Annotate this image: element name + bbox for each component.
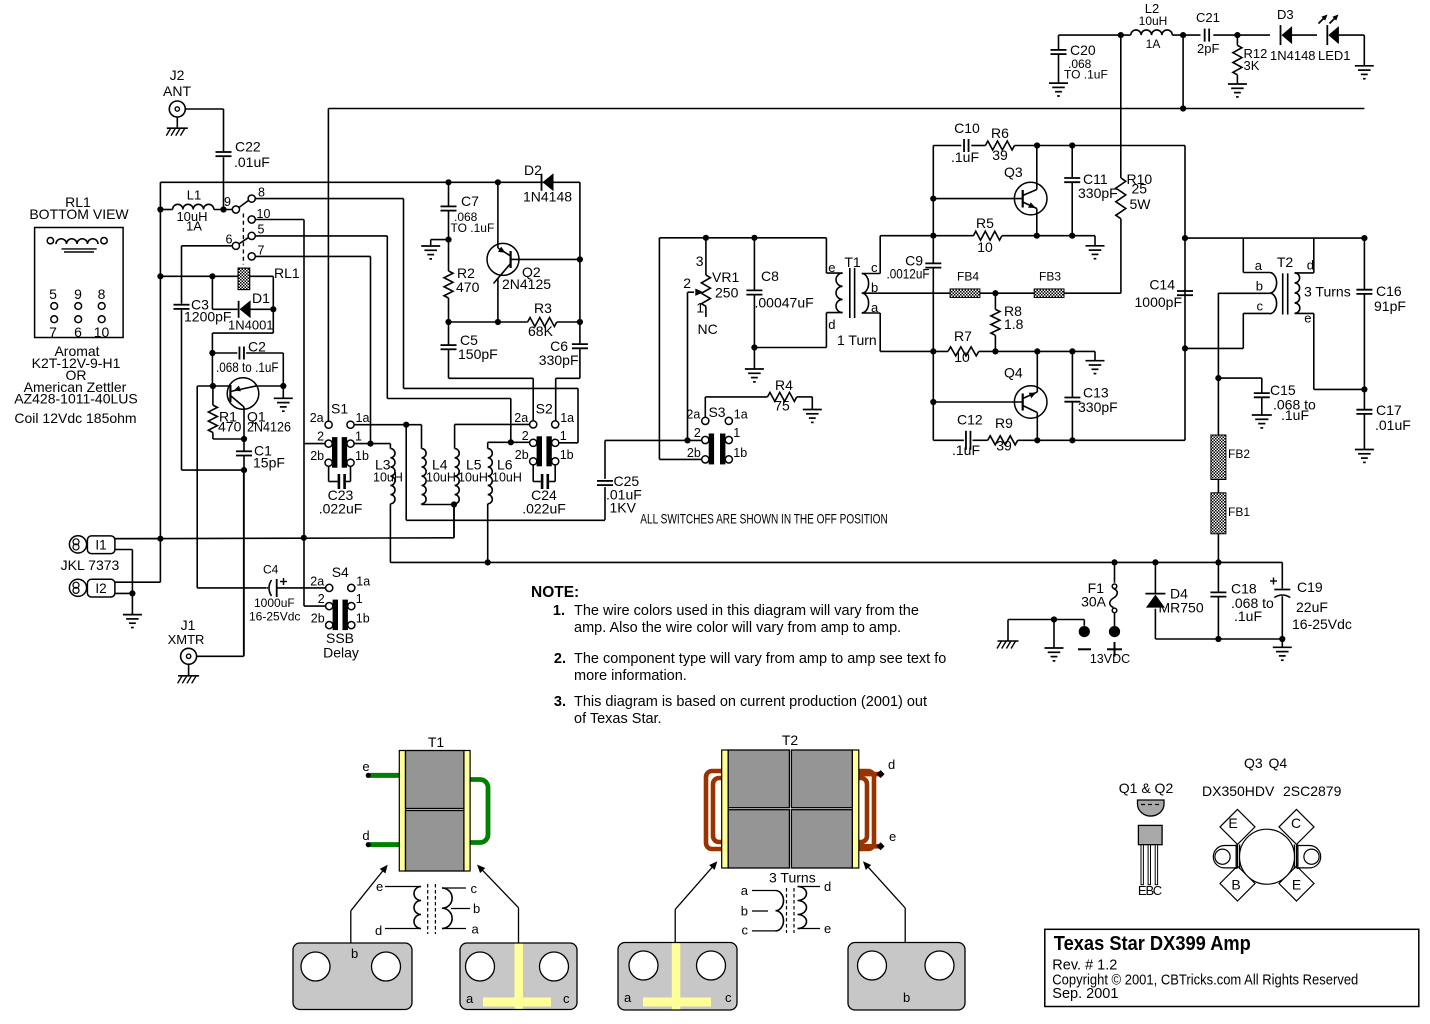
svg-text:75: 75 (774, 398, 790, 414)
svg-text:MR750: MR750 (1159, 600, 1204, 616)
svg-text:ALL SWITCHES ARE SHOWN IN THE: ALL SWITCHES ARE SHOWN IN THE OFF POSITI… (640, 511, 888, 527)
svg-text:2a: 2a (686, 407, 700, 421)
svg-text:C: C (1291, 815, 1301, 831)
svg-text:5: 5 (258, 223, 265, 237)
svg-text:Q1 & Q2: Q1 & Q2 (1119, 780, 1174, 796)
svg-text:ANT: ANT (163, 83, 191, 99)
svg-text:1000uF: 1000uF (254, 596, 295, 610)
svg-text:D3: D3 (1277, 7, 1294, 22)
svg-text:e: e (362, 759, 369, 774)
svg-text:a: a (466, 991, 474, 1006)
svg-text:1A: 1A (1146, 37, 1161, 51)
svg-text:Sep. 2001: Sep. 2001 (1052, 986, 1118, 1002)
svg-text:b: b (903, 990, 910, 1005)
svg-text:b: b (473, 901, 480, 916)
svg-text:FB4: FB4 (957, 270, 979, 284)
svg-text:10: 10 (94, 324, 110, 340)
svg-text:C: C (1153, 883, 1162, 898)
svg-text:E: E (1228, 815, 1237, 831)
svg-text:2pF: 2pF (1197, 41, 1219, 56)
svg-text:.0012uF: .0012uF (887, 266, 930, 282)
svg-text:Rev. # 1.2: Rev. # 1.2 (1052, 958, 1117, 974)
svg-text:10uH: 10uH (458, 471, 488, 485)
svg-text:FB2: FB2 (1228, 447, 1250, 461)
svg-text:2SC2879: 2SC2879 (1283, 783, 1342, 799)
svg-text:2.: 2. (554, 651, 566, 667)
svg-text:68K: 68K (528, 323, 554, 339)
svg-text:Q3: Q3 (1004, 164, 1023, 180)
svg-text:d: d (375, 923, 382, 938)
svg-text:I2: I2 (95, 581, 106, 596)
svg-text:C22: C22 (235, 139, 261, 155)
svg-text:JKL 7373: JKL 7373 (61, 557, 120, 573)
svg-text:2a: 2a (310, 411, 324, 425)
svg-text:c: c (1257, 299, 1264, 314)
svg-text:.01uF: .01uF (234, 154, 270, 170)
svg-text:FB1: FB1 (1228, 505, 1250, 519)
svg-text:1: 1 (355, 430, 362, 444)
svg-text:16-25Vdc: 16-25Vdc (249, 610, 300, 624)
svg-text:C14: C14 (1149, 277, 1175, 293)
svg-text:1b: 1b (733, 446, 747, 460)
svg-text:R5: R5 (976, 215, 994, 231)
svg-text:1a: 1a (560, 411, 574, 425)
svg-text:1a: 1a (356, 574, 370, 588)
svg-text:3: 3 (696, 253, 704, 269)
svg-text:I1: I1 (95, 538, 106, 553)
svg-text:DX350HDV: DX350HDV (1202, 783, 1275, 799)
svg-text:L1: L1 (187, 188, 201, 203)
svg-text:250: 250 (715, 285, 739, 301)
svg-text:470: 470 (218, 419, 242, 435)
svg-text:330pF: 330pF (1078, 185, 1118, 201)
svg-text:C20: C20 (1070, 42, 1096, 58)
svg-text:2: 2 (694, 426, 701, 440)
svg-text:b: b (871, 280, 878, 295)
svg-text:39: 39 (996, 438, 1012, 454)
svg-text:S1: S1 (331, 401, 348, 417)
svg-text:470: 470 (456, 279, 480, 295)
svg-text:C12: C12 (957, 412, 983, 428)
svg-text:7: 7 (258, 244, 265, 258)
svg-text:d: d (362, 828, 369, 843)
svg-text:D1: D1 (252, 290, 270, 306)
svg-text:of Texas Star.: of Texas Star. (574, 711, 662, 727)
svg-text:e: e (824, 921, 831, 936)
svg-text:The component type will vary f: The component type will vary from amp to… (574, 651, 946, 667)
svg-text:6: 6 (226, 233, 233, 247)
svg-text:a: a (624, 990, 632, 1005)
svg-text:T1: T1 (428, 734, 445, 750)
svg-text:This diagram is based on curre: This diagram is based on current product… (574, 694, 927, 710)
svg-text:10uH: 10uH (492, 471, 522, 485)
svg-text:13VDC: 13VDC (1090, 652, 1130, 666)
svg-text:7: 7 (49, 324, 57, 340)
svg-text:1a: 1a (356, 411, 370, 425)
svg-text:2: 2 (317, 430, 324, 444)
svg-text:8: 8 (98, 286, 106, 302)
svg-text:C7: C7 (461, 193, 479, 209)
svg-text:5W: 5W (1130, 196, 1152, 212)
svg-text:1000pF: 1000pF (1135, 294, 1182, 310)
svg-text:c: c (725, 990, 732, 1005)
svg-text:3 Turns: 3 Turns (1304, 283, 1351, 299)
svg-text:.068 to .1uF: .068 to .1uF (216, 359, 279, 375)
svg-text:S4: S4 (332, 564, 349, 580)
svg-text:.1uF: .1uF (952, 442, 980, 458)
svg-text:150pF: 150pF (458, 346, 498, 362)
svg-text:R4: R4 (775, 377, 793, 393)
svg-text:Texas Star DX399 Amp: Texas Star DX399 Amp (1054, 932, 1251, 955)
svg-text:91pF: 91pF (1374, 298, 1406, 314)
svg-text:.022uF: .022uF (319, 501, 363, 517)
svg-text:3.: 3. (554, 694, 566, 710)
svg-text:2: 2 (318, 592, 325, 606)
svg-text:1N4148: 1N4148 (523, 189, 572, 205)
svg-text:amp. Also the wire color will: amp. Also the wire color will vary from … (574, 620, 901, 636)
svg-text:C17: C17 (1376, 402, 1402, 418)
svg-text:more information.: more information. (574, 668, 687, 684)
svg-text:10: 10 (977, 239, 993, 255)
svg-text:FB3: FB3 (1039, 270, 1061, 284)
svg-text:AZ428-1011-40LUS: AZ428-1011-40LUS (14, 391, 137, 407)
svg-text:C21: C21 (1196, 10, 1220, 25)
svg-text:Q4: Q4 (1004, 365, 1023, 381)
svg-text:.01uF: .01uF (1375, 417, 1411, 433)
svg-text:D2: D2 (524, 162, 542, 178)
svg-text:C4: C4 (263, 563, 279, 577)
svg-text:330pF: 330pF (1078, 399, 1118, 415)
svg-text:c: c (871, 260, 878, 275)
svg-text:TO .1uF: TO .1uF (1064, 68, 1108, 82)
svg-text:1N4148: 1N4148 (1270, 48, 1316, 63)
svg-text:.1uF: .1uF (951, 149, 979, 165)
svg-text:TO .1uF: TO .1uF (451, 221, 495, 235)
svg-text:T2: T2 (1277, 254, 1294, 270)
svg-text:2: 2 (683, 275, 691, 291)
svg-text:1A: 1A (186, 219, 202, 234)
svg-text:T2: T2 (782, 732, 799, 748)
svg-text:b: b (1256, 279, 1263, 294)
svg-text:VR1: VR1 (712, 269, 739, 285)
svg-text:16-25Vdc: 16-25Vdc (1292, 616, 1352, 632)
svg-text:c: c (471, 881, 478, 896)
svg-text:9: 9 (224, 195, 231, 209)
svg-text:c: c (563, 991, 570, 1006)
svg-text:RL1: RL1 (274, 265, 300, 281)
svg-text:1.8: 1.8 (1004, 316, 1024, 332)
svg-text:6: 6 (74, 324, 82, 340)
svg-text:330pF: 330pF (539, 352, 579, 368)
svg-text:b: b (741, 904, 748, 919)
svg-text:3K: 3K (1244, 58, 1260, 73)
svg-text:10uH: 10uH (373, 471, 403, 485)
svg-text:2b: 2b (311, 612, 325, 626)
svg-text:30A: 30A (1081, 594, 1107, 610)
svg-text:Coil 12Vdc 185ohm: Coil 12Vdc 185ohm (14, 410, 136, 426)
svg-text:NOTE:: NOTE: (531, 584, 579, 601)
svg-text:b: b (351, 946, 358, 961)
svg-text:3 Turns: 3 Turns (769, 870, 816, 886)
svg-text:10uH: 10uH (1139, 14, 1168, 28)
svg-text:e: e (376, 879, 383, 894)
svg-text:S3: S3 (708, 404, 725, 420)
svg-text:C10: C10 (954, 120, 980, 136)
svg-text:15pF: 15pF (253, 455, 285, 471)
svg-text:d: d (828, 317, 835, 332)
svg-text:25: 25 (1132, 181, 1148, 197)
svg-text:.00047uF: .00047uF (755, 295, 814, 311)
svg-text:a: a (741, 883, 749, 898)
svg-text:22uF: 22uF (1296, 599, 1328, 615)
svg-text:d: d (888, 757, 895, 772)
svg-text:Q4: Q4 (1269, 755, 1288, 771)
svg-text:2b: 2b (515, 448, 529, 462)
svg-text:1: 1 (560, 429, 567, 443)
svg-text:Q3: Q3 (1244, 755, 1263, 771)
svg-text:1 Turn: 1 Turn (837, 332, 877, 348)
svg-text:9: 9 (74, 286, 82, 302)
svg-text:The wire colors used in this d: The wire colors used in this diagram wil… (574, 603, 919, 619)
svg-text:1b: 1b (560, 448, 574, 462)
svg-text:1b: 1b (355, 449, 369, 463)
svg-text:d: d (1307, 258, 1314, 273)
svg-text:NC: NC (698, 321, 718, 337)
svg-text:1N4001: 1N4001 (228, 318, 274, 333)
svg-text:2: 2 (522, 429, 529, 443)
svg-text:e: e (1304, 311, 1311, 326)
svg-text:1: 1 (733, 426, 740, 440)
svg-text:1200pF: 1200pF (184, 309, 231, 325)
svg-text:1: 1 (696, 300, 704, 316)
svg-text:C8: C8 (761, 268, 779, 284)
svg-text:C2: C2 (248, 339, 266, 355)
svg-text:BOTTOM VIEW: BOTTOM VIEW (29, 206, 129, 222)
svg-text:2N4126: 2N4126 (247, 419, 291, 435)
svg-text:C19: C19 (1297, 579, 1323, 595)
svg-text:R6: R6 (991, 125, 1009, 141)
svg-text:a: a (472, 922, 480, 937)
svg-text:2N4125: 2N4125 (502, 276, 551, 292)
svg-text:.1uF: .1uF (1281, 407, 1309, 423)
svg-text:R3: R3 (534, 300, 552, 316)
svg-text:2b: 2b (687, 446, 701, 460)
svg-text:1: 1 (356, 592, 363, 606)
svg-text:T1: T1 (844, 254, 861, 270)
svg-text:a: a (871, 300, 879, 315)
svg-text:LED1: LED1 (1318, 48, 1351, 63)
svg-text:e: e (828, 260, 835, 275)
svg-text:a: a (1255, 258, 1263, 273)
svg-text:39: 39 (992, 147, 1008, 163)
svg-text:1a: 1a (734, 407, 748, 421)
svg-text:2b: 2b (310, 449, 324, 463)
svg-text:5: 5 (49, 286, 57, 302)
svg-text:e: e (889, 829, 896, 844)
svg-text:R7: R7 (954, 328, 972, 344)
svg-text:E: E (1292, 877, 1301, 893)
svg-text:1KV: 1KV (610, 500, 637, 516)
svg-text:2a: 2a (514, 411, 528, 425)
svg-text:C16: C16 (1376, 283, 1402, 299)
svg-text:J1: J1 (181, 617, 196, 633)
svg-text:1.: 1. (553, 603, 565, 619)
svg-text:J2: J2 (170, 67, 185, 83)
svg-text:1b: 1b (356, 612, 370, 626)
svg-text:.1uF: .1uF (1234, 608, 1262, 624)
svg-text:2a: 2a (310, 574, 324, 588)
svg-text:.022uF: .022uF (522, 501, 566, 517)
svg-text:8: 8 (258, 186, 265, 200)
svg-text:c: c (742, 923, 749, 938)
svg-text:10: 10 (954, 349, 970, 365)
svg-text:10uH: 10uH (426, 471, 456, 485)
svg-text:B: B (1231, 877, 1240, 893)
svg-text:d: d (824, 879, 831, 894)
svg-text:S2: S2 (536, 400, 553, 416)
svg-text:Delay: Delay (323, 645, 359, 661)
svg-text:XMTR: XMTR (168, 632, 205, 647)
svg-text:R9: R9 (995, 415, 1013, 431)
